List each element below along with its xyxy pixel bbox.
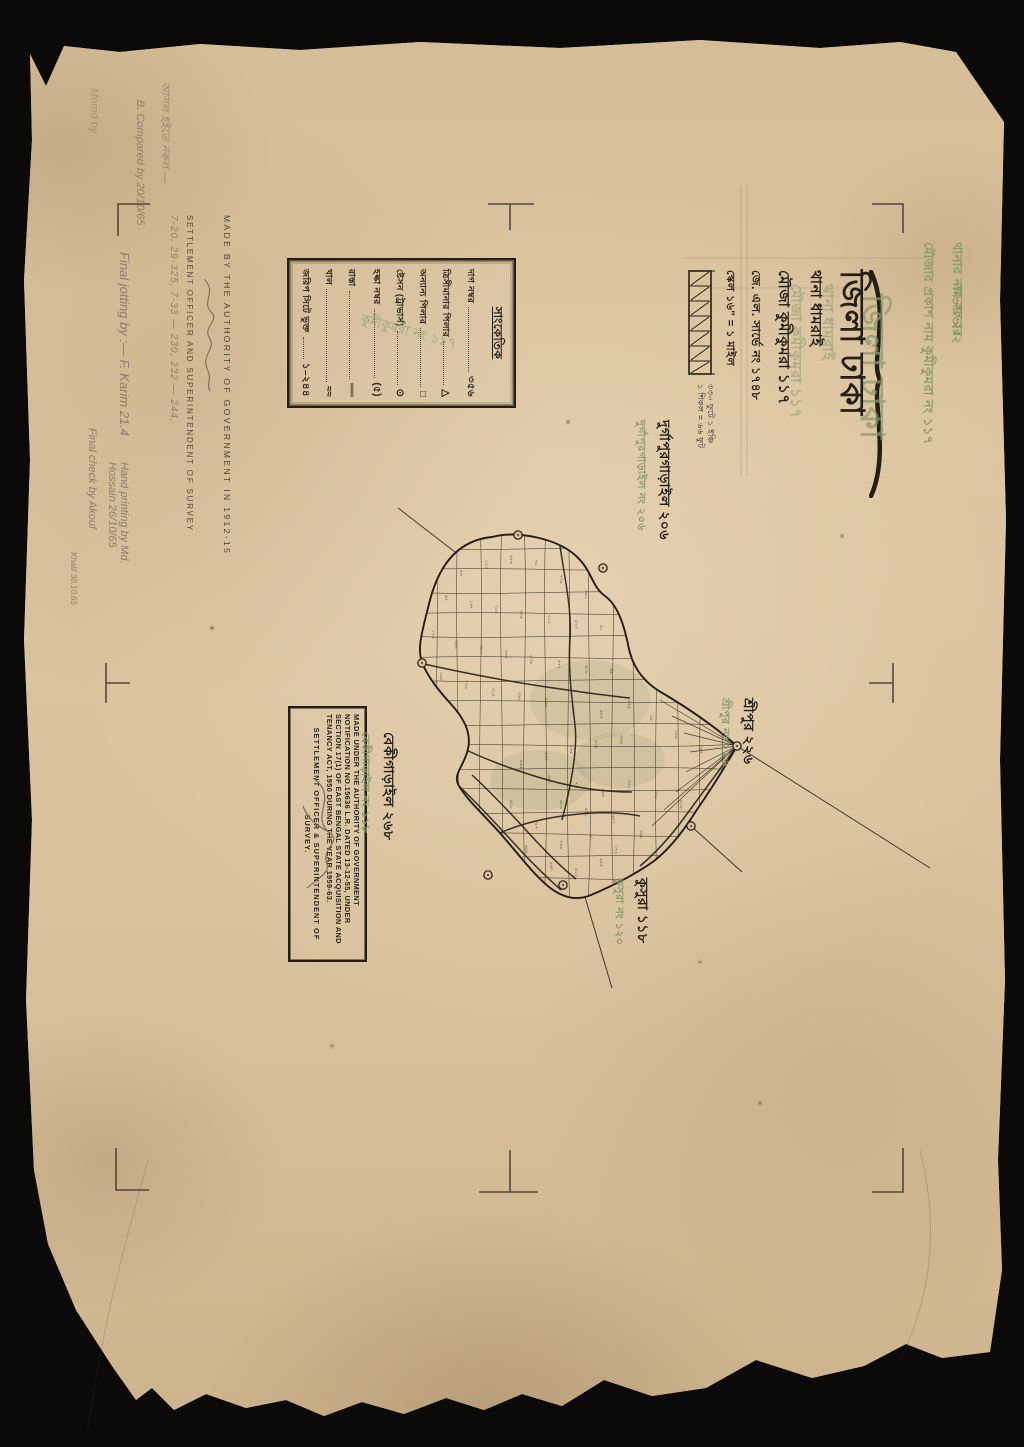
mouza-name-black: কুসুরা ১১৮ <box>630 878 654 970</box>
plot-number: ৫৯৫ <box>518 760 523 769</box>
reg-mark-bottom-center <box>479 1150 538 1192</box>
plot-number: ১৬৬ <box>600 788 605 798</box>
plot-number: ৪১৯ <box>678 800 683 809</box>
scanned-map-sheet: { "title_block": { "district_line": "জিল… <box>0 0 1024 1447</box>
crease-bottom-left <box>88 1160 148 1430</box>
adjacent-mouza-bekigarail: বেকীগাড়াইল ২৬৮ বেকীগাড়াইল নং ১১৮ <box>328 732 400 887</box>
legend-symbol-tri-pillar: △ <box>440 389 451 397</box>
district-title: জিলা ঢাকা <box>834 270 869 500</box>
mouza-title: মৌজা কুমীকুমরা ১১৭ <box>770 270 795 500</box>
survey-number-line: জে. এল. সার্ভে নং ১৭৪৮ <box>744 270 764 500</box>
plot-number: ৪৮৬ <box>558 800 563 810</box>
officer-signature <box>198 275 220 395</box>
plot-number: ১৬৭ <box>468 600 473 609</box>
thana-title: থানা ধামরাই <box>802 270 827 500</box>
mouza-name-black: দুর্গাপুরগাড়াইল ২০৬ <box>652 420 676 570</box>
legend-row: খাল≈≈ <box>321 269 336 397</box>
scale-bar <box>685 270 715 376</box>
adjacent-mouza-sripur: শ্রীপুর ২২৬ শ্রীপুর নং ২২৬ <box>710 698 760 810</box>
plot-number: ৮১ <box>588 835 593 841</box>
plot-number: ১৭৫ <box>430 630 435 639</box>
plot-number: ৪১২ <box>546 615 551 624</box>
plot-number: ৩৮০ <box>478 645 483 654</box>
plot-number: ৬৪৮ <box>638 830 643 840</box>
reg-mark-top-center <box>488 204 534 230</box>
crease-bottom-right <box>900 1150 930 1360</box>
plot-number: ১৪৮ <box>438 672 443 682</box>
plot-number: ১২৩ <box>483 560 488 570</box>
legend-symbol-plot-number: ৩৫৬ <box>461 376 478 397</box>
plot-number: ৯২ <box>443 595 448 601</box>
legend-symbol-khal: ≈≈ <box>323 386 334 397</box>
mouza-name-green: দুর্গাপুরগাড়াইল নং ২০৬ <box>631 420 650 570</box>
adjacent-mouza-kusura: কুসুরা ১১৮ কুসুরা নং ১২০ <box>596 878 654 970</box>
plot-number: ৬৯ <box>648 715 653 721</box>
legend-row: রাস্তা══ <box>344 269 359 397</box>
plot-number: ৪৯৪ <box>523 845 528 854</box>
plot-number: ৩৪৮ <box>653 790 658 800</box>
plot-number: ৪২৮ <box>508 800 513 810</box>
authority-line: MADE BY THE AUTHORITY OF GOVERNMENT IN 1… <box>222 215 232 480</box>
plot-number: ৩৫৭ <box>533 820 538 829</box>
plot-number: ৬০২ <box>610 815 615 824</box>
plot-number: ৬৫ <box>608 668 613 674</box>
mouza-name-green: কুসুরা নং ১২০ <box>609 878 628 970</box>
green-handwritten-note: সাভার ২।২ <box>924 282 966 377</box>
pencil-note-compared: B. Compared by 20/10/65 <box>110 100 146 250</box>
legend-box: সাংকেতিক দাগ নম্বর৩৫৬ ত্রিসীমানার পিলার△… <box>287 258 516 408</box>
legend-symbol-halka: (৫) <box>367 382 384 397</box>
legend-row: দাগ নম্বর৩৫৬ <box>461 269 478 397</box>
title-block: জিলা ঢাকা থানা ধামরাই মৌজা কুমীকুমরা ১১৭… <box>690 270 885 500</box>
scale-statement: স্কেল ১৬″ = ১ মাইল <box>720 270 739 500</box>
plot-number: ৩৪১ <box>583 590 588 599</box>
legend-symbol-included-plots: ১–২৪৪ <box>296 363 313 397</box>
plot-number: ৩৩৬ <box>618 735 623 745</box>
plot-number: ৫২৩ <box>573 620 578 630</box>
plot-number: ৫০৯ <box>528 655 533 664</box>
mouza-name-green: বেকীগাড়াইল নং ১১৮ <box>355 732 374 887</box>
authority-note-block: MADE BY THE AUTHORITY OF GOVERNMENT IN 1… <box>132 215 232 480</box>
plot-number: ২৪৭ <box>698 745 703 754</box>
plot-number: ৩৯৮ <box>516 692 521 702</box>
legend-green-overprint: কুমীকুমরা নং ১১৭ <box>343 306 474 360</box>
plot-number: ৫৭২ <box>556 660 561 669</box>
legend-box-wrap: সাংকেতিক দাগ নম্বর৩৫৬ ত্রিসীমানার পিলার△… <box>287 258 516 408</box>
plot-number: ৪৫৬ <box>508 555 513 565</box>
legend-symbol-traverse-station: ⊙ <box>394 389 405 397</box>
plot-number: ৬১ <box>598 625 603 631</box>
scale-subnote-2: ১ শিকল = ৬৬ ফুট <box>694 384 705 448</box>
plot-number: ৫৪২ <box>543 752 548 761</box>
handwritten-savar: সাভার ২।২ <box>945 282 966 377</box>
pencil-note-bn-copy: আসল হইতে নকল — <box>146 82 174 217</box>
reg-mark-top-right <box>872 204 903 233</box>
settlement-officer-line: SETTLEMENT OFFICER AND SUPERINTENDENT OF… <box>185 215 194 480</box>
plot-number: ৬৪০ <box>546 775 551 784</box>
mouza-name-black: বেকীগাড়াইল ২৬৮ <box>376 732 400 887</box>
plot-number: ৪৬৬ <box>543 698 548 708</box>
plot-number: ৪৭৫ <box>568 745 573 754</box>
mouza-name-green: শ্রীপুর নং ২২৬ <box>715 698 734 810</box>
plot-number: ২৮৮ <box>493 605 498 615</box>
plot-number: ৫৬ <box>458 570 463 577</box>
scale-subnote-1: ৩৩০ ফুটে ১ ইঞ্চি <box>705 384 716 448</box>
plot-number: ৬০৮ <box>583 665 588 675</box>
plot-number: ২২৬ <box>463 680 468 690</box>
pencil-note-final-check: Final check by Akouf <box>62 428 98 543</box>
plot-number: ৫৮৭ <box>598 710 603 719</box>
legend-row: জরিপ সিটে ভুক্ত১–২৪৪ <box>296 269 313 397</box>
plot-number: ৬২৪ <box>626 700 631 709</box>
plot-number: ৩০৫ <box>518 610 523 619</box>
plot-number: ৫৫১ <box>583 808 588 817</box>
plot-number: ৬৫৫ <box>598 858 603 867</box>
plot-number: ২৬৬ <box>558 840 563 850</box>
plot-number: ৪০৮ <box>593 740 598 750</box>
reg-mark-bottom-left <box>116 1148 149 1190</box>
reg-mark-mid-left <box>106 663 130 703</box>
pencil-note-khalil: Khalil 30.10.65 <box>54 552 78 622</box>
mouza-name-black: শ্রীপুর ২২৬ <box>736 698 760 810</box>
legend-symbol-road: ══ <box>346 383 357 397</box>
plot-number: ৪৪৭ <box>503 650 508 659</box>
plot-number: ৬১২ <box>573 868 578 877</box>
plot-number: ৫৬০ <box>548 862 553 871</box>
plot-number: ৩১৫ <box>490 688 495 697</box>
legend-symbol-other-pillar: □ <box>417 391 428 397</box>
pencil-plot-numbers: 7-20, 29-325, 7-33 — 230, 232 — 244, <box>168 215 179 480</box>
plot-number: ২৫৮ <box>626 780 631 790</box>
legend-title: সাংকেতিক <box>486 269 506 397</box>
pencil-note-memd: Memd by <box>46 88 100 183</box>
plot-number: ২০৫ <box>558 575 563 584</box>
plot-number: ১৫৯ <box>673 730 678 739</box>
plot-number: ৫৩০ <box>570 705 575 714</box>
adjacent-mouza-durgapurgarail: দুর্গাপুরগাড়াইল ২০৬ দুর্গাপুরগাড়াইল নং… <box>618 420 676 570</box>
plot-number: ১৭৪ <box>613 845 618 854</box>
plot-number: ৭৩ <box>573 782 578 789</box>
plot-number: ২৯৪ <box>453 640 458 649</box>
plot-number: ৭৮ <box>533 560 538 567</box>
reg-mark-bottom-right <box>872 1148 903 1192</box>
